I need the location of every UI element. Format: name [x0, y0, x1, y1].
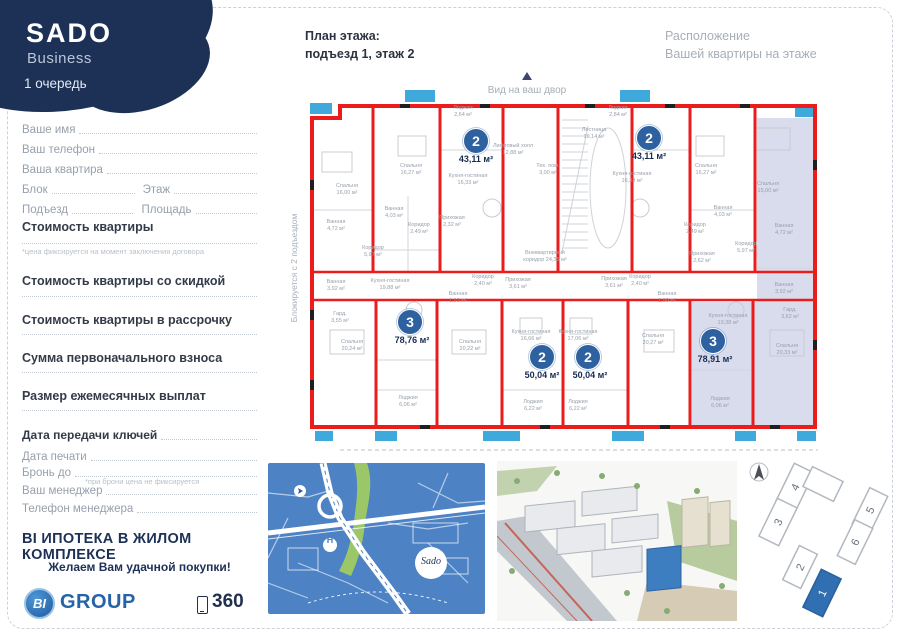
apartment-badge: 2: [575, 344, 601, 370]
apartment-area: 50,04 м²: [525, 370, 560, 380]
apartment-badge: 3: [397, 309, 423, 335]
location-map: [268, 463, 485, 614]
complex-map-logo: Sado: [421, 556, 441, 567]
site-plan: 4 3 5 6 2 1: [745, 440, 900, 636]
apartment-area: 78,91 м²: [698, 354, 733, 364]
apartment-area: 78,76 м²: [395, 335, 430, 345]
compass-icon: [750, 463, 768, 481]
apartment-badge: 3: [700, 328, 726, 354]
apartment-area: 50,04 м²: [573, 370, 608, 380]
complex-render: [497, 461, 737, 621]
apartment-badge: 2: [529, 344, 555, 370]
hospital-marker: H: [327, 535, 334, 545]
apartment-area: 43,11 м²: [459, 154, 493, 164]
apartment-badge: 2: [463, 128, 489, 154]
apartment-area: 43,11 м²: [632, 151, 666, 161]
apartment-badge: 2: [636, 125, 662, 151]
